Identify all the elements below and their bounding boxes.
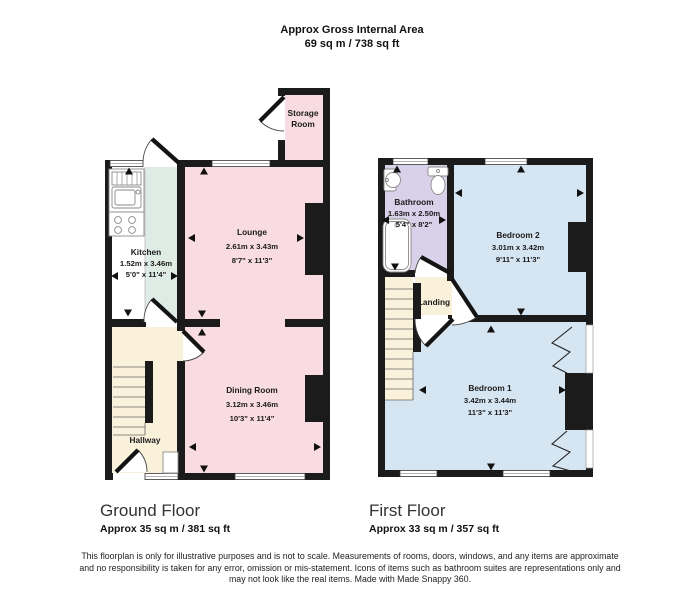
stairs-side-wall-first — [413, 283, 421, 352]
lounge-label: Lounge — [237, 227, 267, 237]
kitchen-imperial: 5'0" x 11'4" — [126, 270, 167, 279]
kitchen-metric: 1.52m x 3.46m — [120, 259, 172, 268]
page-title: Approx Gross Internal Area 69 sq m / 738… — [176, 23, 528, 51]
lounge-metric: 2.61m x 3.43m — [226, 242, 278, 251]
back-door — [143, 139, 179, 163]
disclaimer: This floorplan is only for illustrative … — [40, 551, 660, 586]
kitchen-sink-icon — [109, 169, 144, 212]
bathroom-metric: 1.63m x 2.50m — [388, 209, 440, 218]
bedroom1-window-left — [400, 470, 437, 476]
storage-room-door — [260, 97, 284, 131]
wardrobe-recess-lower — [586, 430, 593, 468]
dining-label: Dining Room — [226, 385, 278, 395]
floorplan-page: Approx Gross Internal Area 69 sq m / 738… — [0, 0, 700, 596]
dining-chimney-breast — [305, 375, 323, 422]
bathroom-label: Bathroom — [394, 197, 433, 207]
storage-label-line2: Room — [291, 119, 315, 129]
hallway-label: Hallway — [130, 435, 161, 445]
stairs-side-wall — [145, 361, 153, 423]
stairs-floor — [385, 277, 413, 400]
bathroom-window — [393, 158, 428, 164]
bedroom2-floor — [454, 165, 586, 315]
bedroom2-metric: 3.01m x 3.42m — [492, 243, 544, 252]
lounge-chimney-breast — [305, 203, 323, 275]
wardrobe-recess-upper — [586, 325, 593, 373]
bedroom1-window-right — [503, 470, 550, 476]
bedroom1-chimney-breast — [565, 373, 593, 430]
lounge-dining-opening — [220, 319, 285, 327]
landing-label: Landing — [418, 297, 450, 307]
ground-floor-caption: Ground Floor — [100, 501, 200, 521]
dining-imperial: 10'3" x 11'4" — [230, 414, 275, 423]
title-line1: Approx Gross Internal Area — [176, 23, 528, 37]
kitchen-window — [110, 160, 143, 166]
first-floor-plan: Bathroom 1.63m x 2.50m 5'4" x 8'2" Bedro… — [368, 155, 598, 485]
dining-window — [235, 473, 305, 479]
kitchen-label: Kitchen — [131, 247, 161, 257]
bedroom2-chimney-breast — [568, 222, 593, 272]
ground-room-fills — [112, 95, 323, 473]
lounge-window — [212, 160, 270, 166]
disclaimer-line2: and no responsibility is taken for any e… — [40, 563, 660, 575]
bedroom1-label: Bedroom 1 — [468, 383, 512, 393]
kitchen-hob-icon — [109, 212, 144, 236]
first-floor-caption: First Floor — [369, 501, 446, 521]
first-floor-area: Approx 33 sq m / 357 sq ft — [369, 523, 499, 535]
bathroom-imperial: 5'4" x 8'2" — [396, 220, 433, 229]
bedroom1-imperial: 11'3" x 11'3" — [468, 408, 513, 417]
hallway-radiator-icon — [163, 452, 178, 473]
dining-metric: 3.12m x 3.46m — [226, 400, 278, 409]
lounge-imperial: 8'7" x 11'3" — [232, 256, 273, 265]
disclaimer-line3: may not look like the real items. Made w… — [40, 574, 660, 586]
ground-floor-plan: Kitchen 1.52m x 3.46m 5'0" x 11'4" Loung… — [95, 75, 345, 495]
disclaimer-line1: This floorplan is only for illustrative … — [40, 551, 660, 563]
storage-label-line1: Storage — [288, 108, 319, 118]
bedroom1-metric: 3.42m x 3.44m — [464, 396, 516, 405]
bedroom2-window — [485, 158, 527, 164]
ground-floor-area: Approx 35 sq m / 381 sq ft — [100, 523, 230, 535]
bedroom2-label: Bedroom 2 — [496, 230, 540, 240]
title-line2: 69 sq m / 738 sq ft — [176, 37, 528, 51]
hallway-window — [145, 473, 178, 479]
bedroom2-imperial: 9'11" x 11'3" — [496, 255, 541, 264]
